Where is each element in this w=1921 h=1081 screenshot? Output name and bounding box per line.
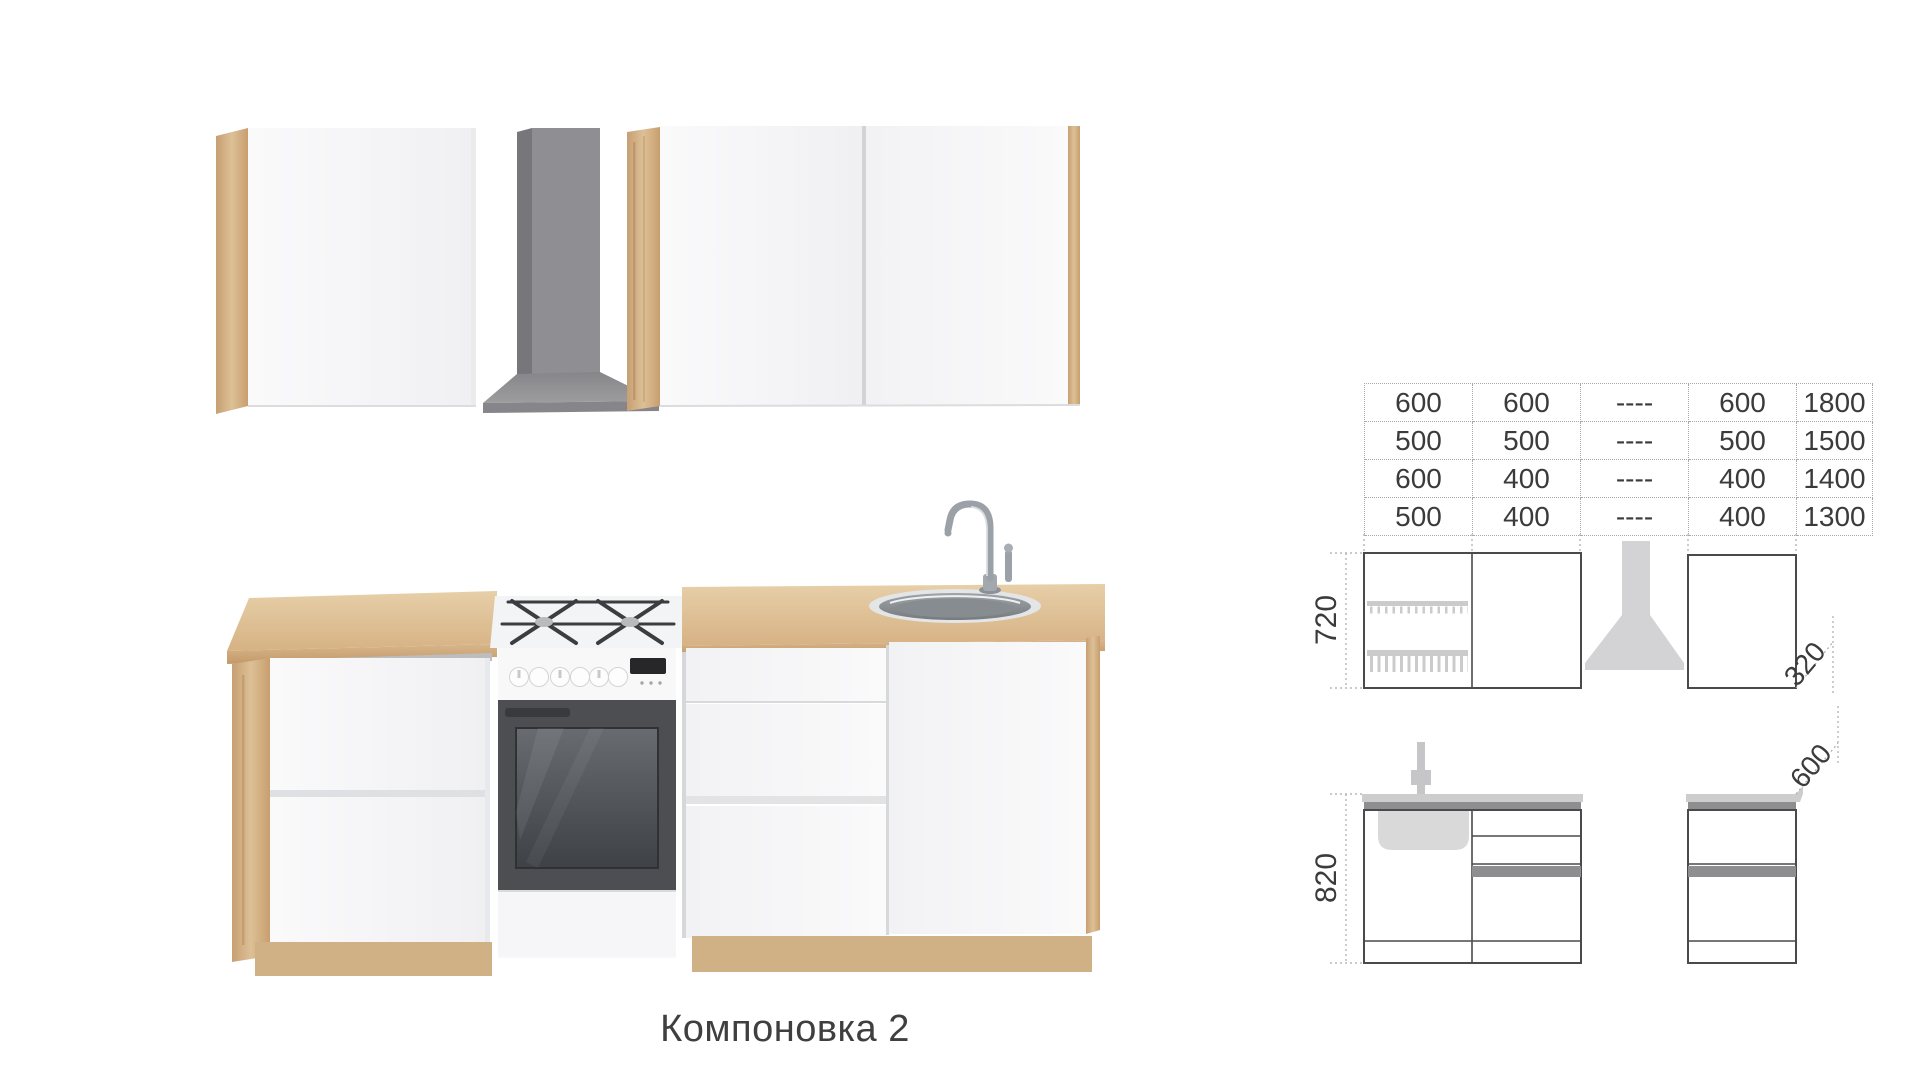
drawer-front-bottom [686,806,886,938]
column-guide-lines [1364,534,1796,555]
layout-caption: Компоновка 2 [600,1008,970,1051]
drawer-groove-strip [1688,866,1796,877]
table-cell: ---- [1581,460,1689,498]
hood-icon [1585,541,1684,670]
sink [869,589,1041,623]
hood-chimney-front [532,128,600,374]
height-label: 720 [1310,595,1343,645]
kitchen-3d-render [190,100,1120,990]
faucet [945,504,1014,594]
table-cell: 500 [1473,422,1581,460]
faucet-tip [945,530,952,537]
drawer-edge-shade [485,658,490,942]
stove [490,596,682,958]
sink-bowl-bottom [896,599,1014,618]
stove-bottom-drawer [498,893,676,956]
door-edge-shade [471,128,476,406]
kitchen-spec-sheet: Компоновка 2 600 600 ---- 600 1800 500 5… [0,0,1921,1081]
wall-cabinet-left [216,128,476,414]
table-cell: 400 [1689,460,1797,498]
wood-grain-streak [643,136,645,402]
height-label: 820 [1310,853,1343,903]
table-cell-total: 1400 [1797,460,1873,498]
knob [530,668,549,687]
table-cell: 400 [1473,460,1581,498]
sink-base-cabinet [886,636,1100,935]
base-cabinet-left [232,658,492,976]
plinth-right [692,936,1092,972]
wood-grain-streak [633,142,636,400]
wood-side-panel [1086,636,1100,934]
table-cell: 600 [1473,384,1581,422]
drawer-front-middle [686,704,886,796]
faucet-lever-knob [1004,544,1013,553]
countertop-surface [227,591,497,651]
indicator-dot [649,681,652,684]
countertop-top [1362,794,1583,802]
knob-mark [518,670,521,678]
knob [609,668,628,687]
upper-elevation: 720 320 [1310,541,1833,696]
table-cell: 600 [1365,384,1473,422]
faucet-lever [1005,550,1012,582]
drawer-groove-strip [1472,866,1581,877]
depth-label: 600 [1784,738,1838,794]
cabinet-door [889,642,1086,934]
hood-chimney-side [517,128,532,377]
display [630,658,666,674]
countertop-left [227,591,497,668]
cabinet-door [248,128,476,406]
dimension-table: 600 600 ---- 600 1800 500 500 ---- 500 1… [1364,383,1873,536]
cabinet-bottom-edge [660,405,1080,406]
burner-cap [621,617,639,627]
faucet-highlight [971,507,987,576]
knob-mark [598,670,601,678]
oven-handle [505,708,570,717]
table-cell-total: 1500 [1797,422,1873,460]
cabinet-door-left [660,126,862,406]
burner-cap [535,617,553,627]
wood-side-panel [232,658,270,962]
drawer-front-top [686,648,886,702]
faucet-symbol [1411,742,1431,798]
oven-door [498,700,676,890]
sink-basin-symbol [1378,811,1469,850]
drawer-groove [686,796,886,804]
height-dimension-720: 720 [1310,553,1364,688]
indicator-dot [640,681,643,684]
drawer-unit-right-of-stove [682,648,886,938]
table-cell: 600 [1365,460,1473,498]
plinth [255,942,492,976]
countertop-edge [1688,802,1796,810]
wall-cabinet-right [627,126,1080,411]
drawer-gap [270,790,490,797]
knob [571,668,590,687]
cabinet-door-right [866,126,1068,406]
depth-dimension-600: 600 [1784,706,1838,794]
drawer-base-drawing [1686,786,1803,963]
wall-cabinet-drawing [1364,553,1581,688]
countertop-edge [1364,802,1581,810]
lower-elevation: 820 [1310,706,1838,963]
height-dimension-820: 820 [1310,794,1364,963]
table-cell-total: 1800 [1797,384,1873,422]
unit-gap-shade [682,652,686,938]
indicator-dot [658,681,661,684]
door-gap [886,645,889,935]
table-cell: ---- [1581,422,1689,460]
table-cell: ---- [1581,384,1689,422]
drawer-front-top [270,658,490,790]
wood-side-panel [216,128,248,414]
table-cell: 500 [1365,422,1473,460]
countertop-right [682,504,1105,665]
knob-mark [559,670,562,678]
wood-grain-streak [242,675,245,945]
wood-edge-right [1068,126,1080,405]
drawer-front-bottom [270,797,490,942]
sink-base-drawing [1362,794,1583,963]
table-cell: 600 [1689,384,1797,422]
countertop-top [1686,786,1803,802]
elevation-drawings: 720 320 [1290,530,1921,980]
table-cell: 500 [1689,422,1797,460]
door-gap [862,126,866,406]
